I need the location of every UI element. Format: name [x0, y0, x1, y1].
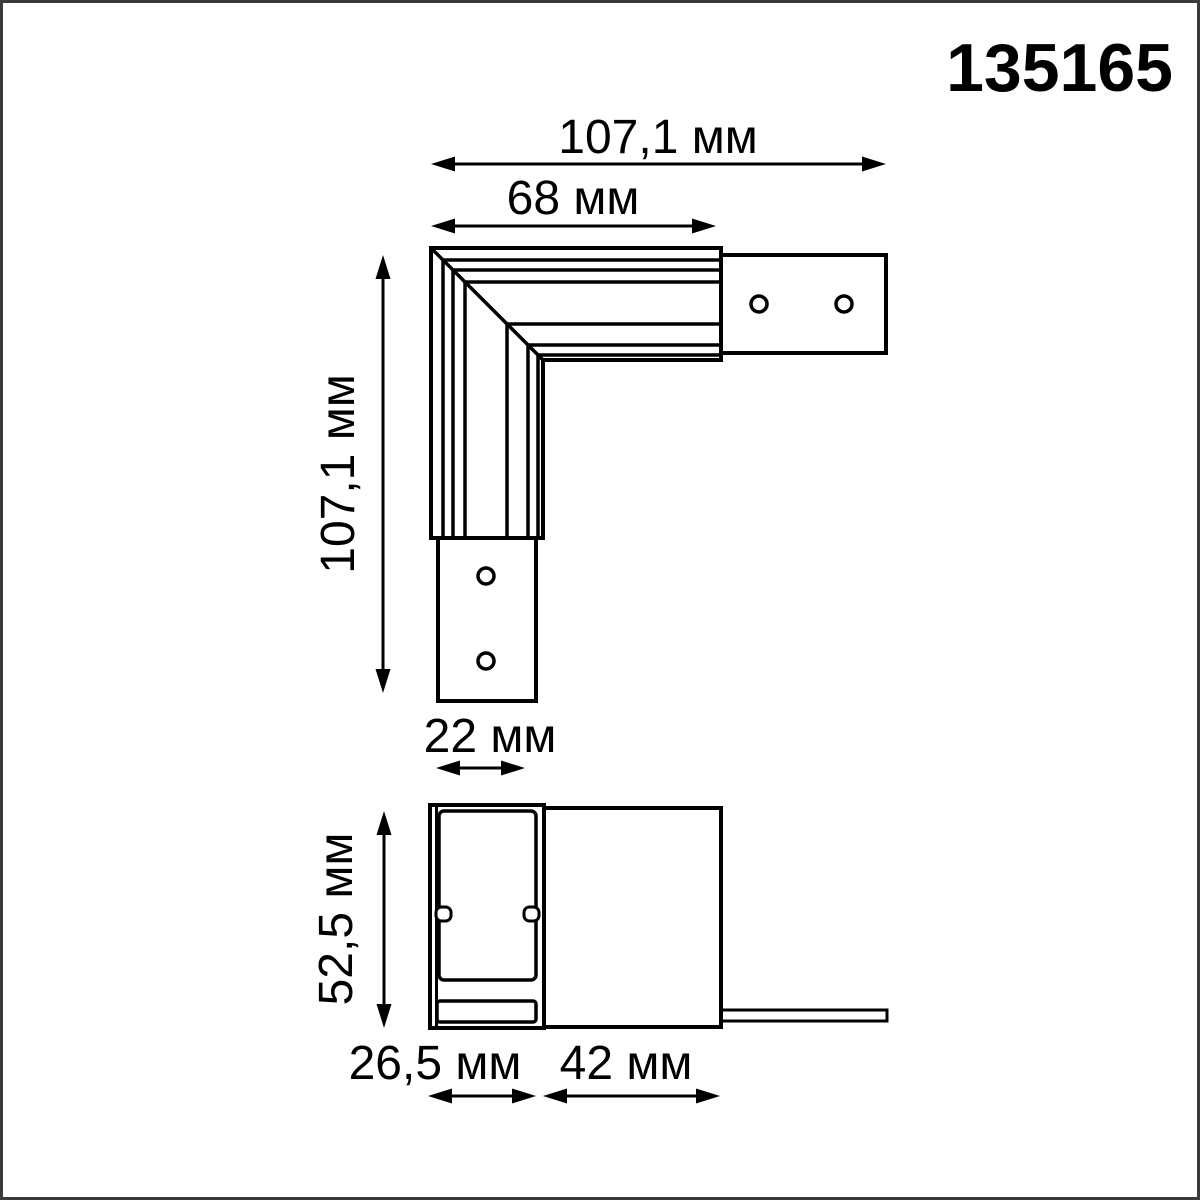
top-view-bottom-plate-hole-2	[478, 653, 494, 669]
side-view-rail-notch-right	[524, 907, 539, 921]
arrowhead-left	[431, 219, 455, 234]
dim-track-section-width: 26,5 мм	[349, 1037, 536, 1104]
drawing-canvas: 107,1 мм 68 мм 107,1 мм 22 мм 52,5 мм 26…	[0, 0, 1200, 1200]
top-view-bottom-plate-hole-1	[478, 568, 494, 584]
top-view	[431, 248, 886, 701]
dim-body-width: 42 мм	[543, 1037, 720, 1104]
side-view-connector-body	[544, 808, 721, 1027]
dim-side-height: 52,5 мм	[310, 811, 392, 1028]
dim-total-height: 107,1 мм	[312, 255, 391, 693]
dim-side-height-label: 52,5 мм	[310, 833, 363, 1006]
dim-tab-width: 22 мм	[424, 710, 557, 776]
dim-track-length: 68 мм	[431, 172, 716, 234]
arrowhead-left	[428, 1089, 452, 1104]
side-view-rail-notch-left	[436, 907, 451, 921]
arrowhead-right	[696, 1089, 720, 1104]
top-view-right-end-plate	[721, 255, 886, 353]
arrowhead-left	[543, 1089, 567, 1104]
side-view-contact-blade	[719, 1010, 887, 1021]
arrowhead-down	[377, 1004, 392, 1028]
arrowhead-left	[431, 157, 455, 172]
product-code: 135165	[946, 30, 1173, 106]
arrowhead-up	[377, 811, 392, 835]
arrowhead-right	[692, 219, 716, 234]
top-view-bottom-end-plate	[438, 538, 536, 701]
top-view-right-plate-hole-2	[836, 296, 852, 312]
technical-drawing: 107,1 мм 68 мм 107,1 мм 22 мм 52,5 мм 26…	[3, 3, 1197, 1197]
arrowhead-right	[512, 1089, 536, 1104]
arrowhead-down	[376, 669, 391, 693]
dim-tab-width-label: 22 мм	[424, 710, 557, 763]
dim-total-height-label: 107,1 мм	[312, 374, 365, 573]
arrowhead-up	[376, 255, 391, 279]
arrowhead-right	[862, 157, 886, 172]
side-view	[430, 805, 887, 1028]
side-view-lower-slot	[437, 1001, 536, 1022]
top-view-right-plate-hole-1	[751, 296, 767, 312]
side-view-channel	[439, 811, 536, 980]
dim-body-width-label: 42 мм	[560, 1037, 693, 1090]
dim-total-width: 107,1 мм	[431, 111, 886, 172]
dim-track-section-width-label: 26,5 мм	[349, 1037, 522, 1090]
dim-total-width-label: 107,1 мм	[558, 111, 757, 164]
dim-track-length-label: 68 мм	[507, 172, 640, 225]
